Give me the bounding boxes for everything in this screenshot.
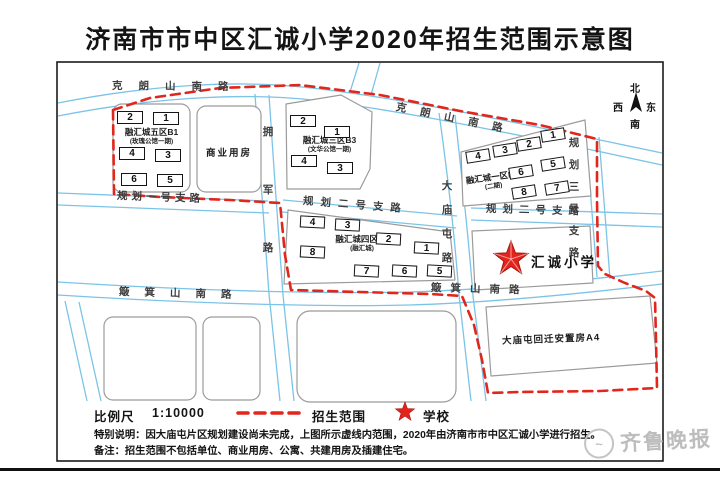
building-marker: 2 xyxy=(117,111,143,124)
remark-note: 备注：招生范围不包括单位、商业用房、公寓、共建用房及插建住宅。 xyxy=(94,442,413,457)
building-marker: 4 xyxy=(119,147,145,160)
road-label: 克朗山南路 xyxy=(112,81,245,93)
building-marker: 4 xyxy=(291,155,317,167)
enrollment-map-page: 济南市市中区汇诚小学2020年招生范围示意图 xyxy=(0,0,720,480)
newspaper-logo-icon: ~ xyxy=(583,428,615,460)
building-marker: 5 xyxy=(157,174,183,187)
compass-east-label: 东 xyxy=(646,99,656,114)
road-label: 规划三号支路 xyxy=(568,138,580,259)
parcel-b1-label: 融汇城五区B1 (玫瑰公馆一期) xyxy=(113,128,190,145)
parcel-empty-3 xyxy=(297,311,456,402)
building-marker: 7 xyxy=(354,264,380,277)
building-marker: 3 xyxy=(327,162,353,174)
school-label: 汇诚小学 xyxy=(531,251,597,271)
compass-south-label: 南 xyxy=(630,116,640,131)
legend-school-label: 学校 xyxy=(423,406,450,425)
legend-scale-value: 1:10000 xyxy=(152,406,205,420)
compass-needle-icon xyxy=(630,92,642,112)
parcel-commercial-label: 商业用房 xyxy=(197,143,261,161)
building-marker: 5 xyxy=(427,264,453,277)
building-marker: 6 xyxy=(121,173,147,186)
road-label: 拥军路 xyxy=(262,127,274,254)
building-marker: 1 xyxy=(153,112,179,125)
building-marker: 1 xyxy=(414,241,440,254)
road-label: 大庙屯路 xyxy=(441,181,453,264)
building-marker: 1 xyxy=(324,126,350,138)
compass-west-label: 西 xyxy=(613,99,623,114)
bottom-border-line xyxy=(0,468,720,471)
special-note: 特别说明：因大庙屯片区规划建设尚未完成，上图所示虚线内范围，2020年由济南市市… xyxy=(94,426,601,441)
parcel-b3-label: 融汇城三区B3 (文华公馆一期) xyxy=(286,136,373,153)
building-marker: 8 xyxy=(300,245,326,258)
legend-school-star-icon xyxy=(395,402,414,420)
building-marker: 4 xyxy=(300,215,326,228)
legend-scale-label: 比例尺 xyxy=(94,406,135,425)
building-marker: 3 xyxy=(155,149,181,162)
parcel-empty-2 xyxy=(203,317,260,400)
building-marker: 2 xyxy=(290,115,316,127)
building-marker: 6 xyxy=(392,264,418,277)
parcel-empty-1 xyxy=(104,317,196,400)
legend-range-label: 招生范围 xyxy=(312,406,366,425)
compass-north-label: 北 xyxy=(630,80,640,95)
building-marker: 3 xyxy=(335,218,361,231)
building-marker: 2 xyxy=(376,232,402,245)
